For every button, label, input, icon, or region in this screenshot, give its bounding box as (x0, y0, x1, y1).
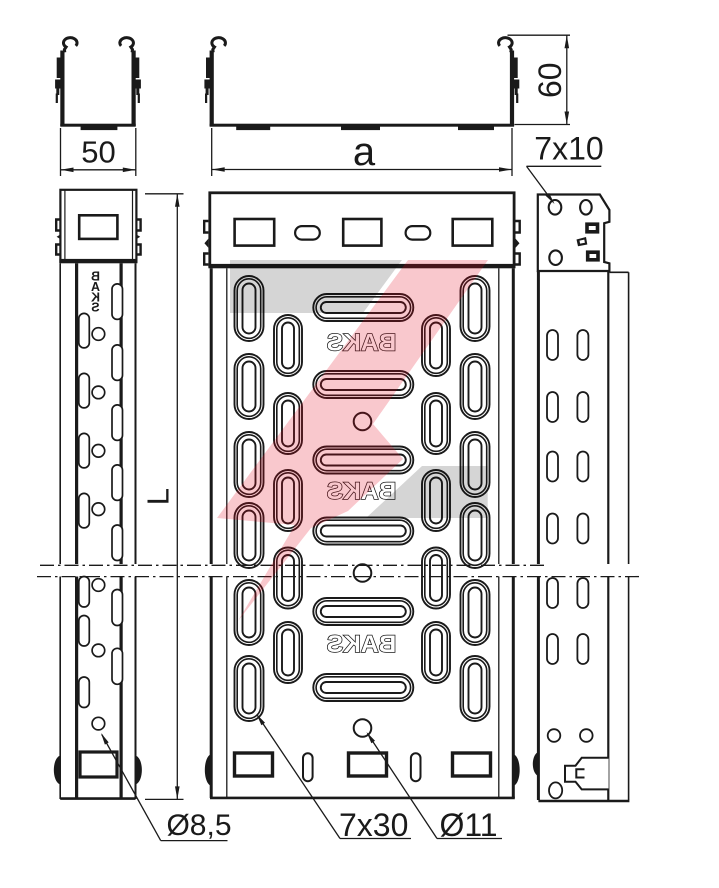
svg-text:7x30: 7x30 (339, 807, 408, 843)
svg-text:S: S (91, 301, 99, 315)
svg-text:Ø11: Ø11 (439, 807, 497, 843)
svg-text:a: a (353, 130, 376, 174)
svg-text:BAKS: BAKS (327, 631, 396, 658)
svg-text:Ø8,5: Ø8,5 (166, 809, 231, 842)
svg-text:50: 50 (81, 135, 115, 170)
svg-text:60: 60 (532, 62, 568, 98)
svg-text:7x10: 7x10 (534, 131, 603, 167)
svg-text:L: L (140, 488, 175, 505)
